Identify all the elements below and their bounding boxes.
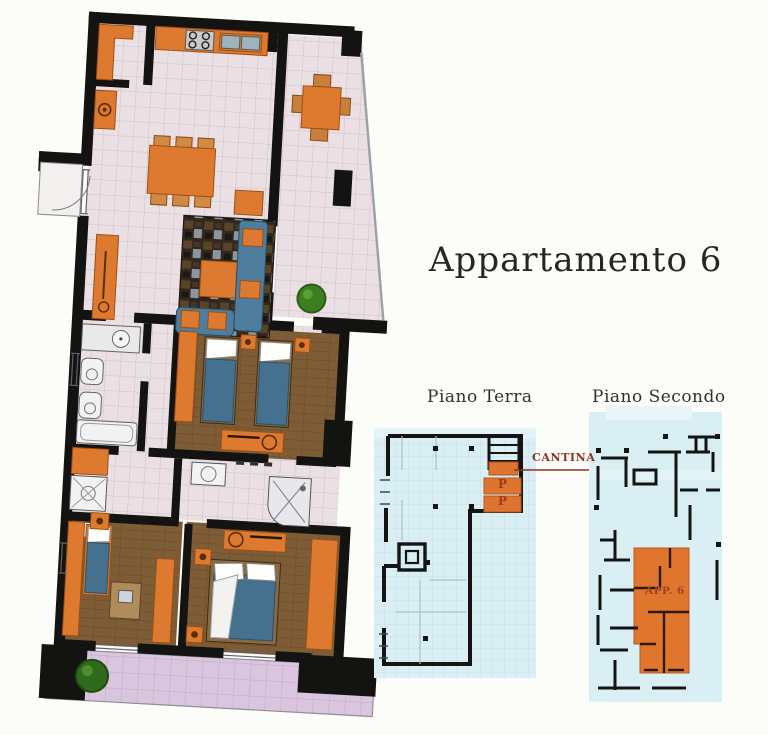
stove-icon (185, 30, 214, 51)
floorplan-page: Appartamento 6 Piano Terra Piano Secondo… (0, 0, 768, 735)
app6-label: APP. 6 (645, 585, 685, 597)
piano-secondo-label: Piano Secondo (592, 387, 726, 407)
washbasin (191, 462, 226, 486)
dining-table (146, 135, 216, 208)
twin-bed (256, 362, 289, 426)
sofa-cushion (242, 229, 263, 247)
parking-label: P (484, 477, 521, 491)
twin-bed (202, 359, 235, 423)
chair (194, 196, 211, 208)
vanity-counter (81, 324, 140, 353)
chair (172, 195, 189, 207)
dresser (221, 430, 284, 453)
loveseat-cushion (208, 312, 227, 330)
cantina-box (489, 462, 518, 475)
toilet-icon (80, 358, 103, 385)
main-apartment-floorplan (0, 0, 420, 735)
single-bed (85, 542, 110, 593)
bidet-icon (78, 392, 101, 419)
piano-terra-label: Piano Terra (427, 387, 533, 407)
plant-icon (75, 659, 109, 693)
wardrobe (306, 539, 338, 650)
chair (313, 74, 331, 87)
sink-basin (221, 35, 240, 49)
desk-chair (118, 590, 133, 603)
plant-icon (297, 284, 327, 314)
piano-secondo-keyplan (585, 403, 730, 705)
coffee-table (199, 260, 237, 298)
cantina-annotation: CANTINA (532, 451, 595, 464)
terrace-pillar (333, 170, 353, 207)
loveseat-cushion (181, 310, 200, 328)
plan-tilted-group (9, 9, 413, 716)
pillow (206, 339, 237, 361)
entry-landing (38, 162, 83, 216)
page-title: Appartamento 6 (429, 240, 722, 280)
pillow (246, 563, 277, 581)
parking-label: P (484, 494, 521, 508)
app6-zone (634, 548, 689, 673)
sofa-cushion (239, 281, 260, 299)
laundry-counter (71, 447, 108, 475)
armchair (234, 190, 263, 216)
table-top (147, 145, 216, 197)
terrace-table (301, 86, 341, 130)
sink-basin (241, 36, 260, 50)
door-dashes (236, 463, 272, 465)
chair (150, 193, 167, 205)
chair (310, 128, 328, 141)
pillow (260, 342, 291, 364)
